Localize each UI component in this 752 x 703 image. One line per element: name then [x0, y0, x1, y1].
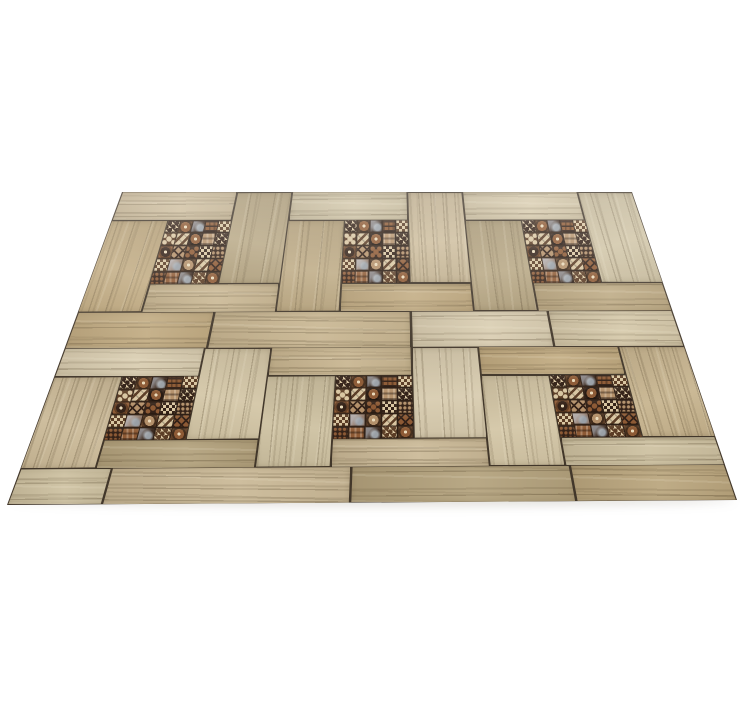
decor-pattern-cell [524, 233, 538, 245]
decor-pattern-cell [170, 428, 188, 440]
decor-pattern-cell [567, 387, 584, 399]
wood-plank-bottom-band [66, 312, 214, 348]
decor-pattern-cell [398, 376, 413, 388]
page-background [0, 0, 752, 703]
decor-pattern-cell [398, 401, 413, 413]
decor-pattern-cell [604, 413, 622, 425]
decor-pattern-cell [166, 377, 183, 389]
wood-plank-top-plank [55, 348, 203, 376]
wood-plank-bottom-band [8, 469, 111, 505]
decor-pattern-cell [336, 376, 351, 388]
decor-pattern-cell [601, 400, 619, 412]
decor-pattern-cell [398, 426, 413, 438]
decor-pattern-cell [396, 246, 409, 258]
wood-plank-bottom-band [103, 467, 350, 504]
decor-pattern-cell [370, 220, 382, 232]
wood-plank-bottom-band [412, 311, 553, 347]
decor-pattern-cell [383, 246, 395, 258]
decor-pattern-cell [370, 259, 383, 271]
decor-pattern-cell [570, 400, 587, 412]
decor-pattern-cell [163, 389, 181, 401]
decor-pattern-cell [182, 376, 199, 388]
decor-pattern-cell [382, 388, 397, 400]
wood-plank-mid-plank [97, 440, 258, 469]
decor-pattern-cell [383, 233, 395, 245]
wood-plank-top-plank [113, 192, 237, 220]
decor-pattern-cell [367, 376, 382, 388]
decor-pattern-cell [351, 376, 366, 388]
decor-pattern-cell [176, 402, 194, 414]
decor-pattern-cell [607, 425, 625, 437]
decor-pattern-cell [350, 401, 365, 413]
decor-pattern-cell [396, 220, 408, 232]
decor-pattern-cell [370, 246, 382, 258]
decor-pattern-cell [334, 401, 349, 413]
decor-pattern-cell [545, 271, 560, 283]
wood-plank-mid-plank [562, 437, 724, 465]
wood-plank-top-plank [290, 192, 408, 219]
decor-pattern-cell [596, 375, 613, 387]
decor-pattern-cell [382, 414, 397, 426]
tile-floor-display [0, 0, 752, 703]
decor-pattern-cell [382, 426, 397, 438]
decor-pattern-cell [369, 271, 382, 283]
decor-pattern-cell [383, 271, 396, 283]
wood-plank-left-plank [256, 376, 335, 466]
decor-pattern-cell [358, 220, 370, 232]
decor-pattern-cell [356, 259, 369, 271]
decor-pattern-cell [526, 246, 541, 258]
decor-pattern-cell [366, 388, 381, 400]
wood-plank-mid-plank [341, 284, 473, 312]
decor-pattern-cell [333, 414, 349, 426]
decor-pattern-cell [351, 388, 366, 400]
decor-pattern-cell [335, 389, 350, 401]
decor-pattern-cell [542, 258, 557, 270]
decor-pattern-cell [333, 427, 349, 439]
wood-plank-bottom-band [208, 312, 410, 348]
decor-pattern-cell [356, 246, 369, 258]
decor-pattern-cell [540, 246, 555, 258]
decor-pattern-cell [342, 271, 355, 283]
decor-pattern-cell [342, 259, 355, 271]
decor-pattern-cell [157, 415, 175, 427]
decor-pattern-cell [586, 400, 604, 412]
wood-plank-bottom-band [571, 465, 736, 501]
wood-plank-bottom-band [549, 311, 684, 346]
wood-plank-mid-plank [534, 283, 671, 311]
decor-pattern-cell [575, 425, 593, 437]
decor-pattern-cell [383, 259, 396, 271]
decor-pattern-cell [350, 414, 365, 426]
decor-pattern-cell [529, 258, 544, 270]
decor-pattern-cell [345, 220, 357, 232]
decor-pattern-cell [370, 233, 382, 245]
decor-pattern-cell [154, 428, 172, 440]
decor-pattern-cell [572, 413, 590, 425]
decor-pattern-cell [588, 413, 606, 425]
decor-pattern-cell [398, 388, 413, 400]
wood-plank-bottom-band [351, 466, 575, 503]
decor-pattern-cell [366, 401, 381, 413]
decor-pattern-cell [382, 401, 397, 413]
decor-pattern-cell [522, 220, 536, 232]
wood-plank-mid-plank [332, 438, 489, 466]
decor-pattern-cell [531, 271, 546, 283]
decor-pattern-cell [383, 220, 395, 232]
decor-pattern-cell [599, 387, 617, 399]
decor-pattern-cell [366, 414, 381, 426]
decor-pattern-cell [556, 413, 573, 425]
decor-pattern-cell [349, 427, 365, 439]
decor-pattern-cell [552, 388, 569, 400]
decor-pattern-cell [343, 246, 356, 258]
decor-pattern-cell [397, 271, 410, 283]
decor-pattern-cell [398, 414, 413, 426]
decor-pattern-cell [355, 271, 368, 283]
decor-pattern-cell [580, 375, 597, 387]
decor-pattern-cell [583, 387, 600, 399]
decor-pattern-cell [591, 425, 609, 437]
decor-pattern-cell [396, 233, 408, 245]
decor-pattern-cell [382, 376, 397, 388]
decor-pattern-cell [397, 259, 410, 271]
decor-pattern-cell [554, 400, 571, 412]
decor-pattern-cell [357, 233, 369, 245]
wood-plank-top-plank [463, 192, 584, 219]
wood-plank-mid-plank [142, 284, 278, 312]
decor-pattern-cell [565, 375, 582, 387]
decor-pattern-cell [550, 375, 567, 387]
decor-pattern-cell [344, 233, 357, 245]
wood-plank-top-plank [269, 347, 412, 375]
decor-pattern-cell [179, 389, 196, 401]
wood-plank-right-plank [413, 348, 487, 438]
decor-pattern-cell [559, 426, 577, 438]
decor-pattern-cell [160, 402, 178, 414]
decor-pattern-cell [173, 415, 191, 427]
wood-plank-right-plank [408, 193, 470, 282]
decor-pattern-cell [365, 427, 380, 439]
wood-plank-top-plank [479, 347, 624, 375]
